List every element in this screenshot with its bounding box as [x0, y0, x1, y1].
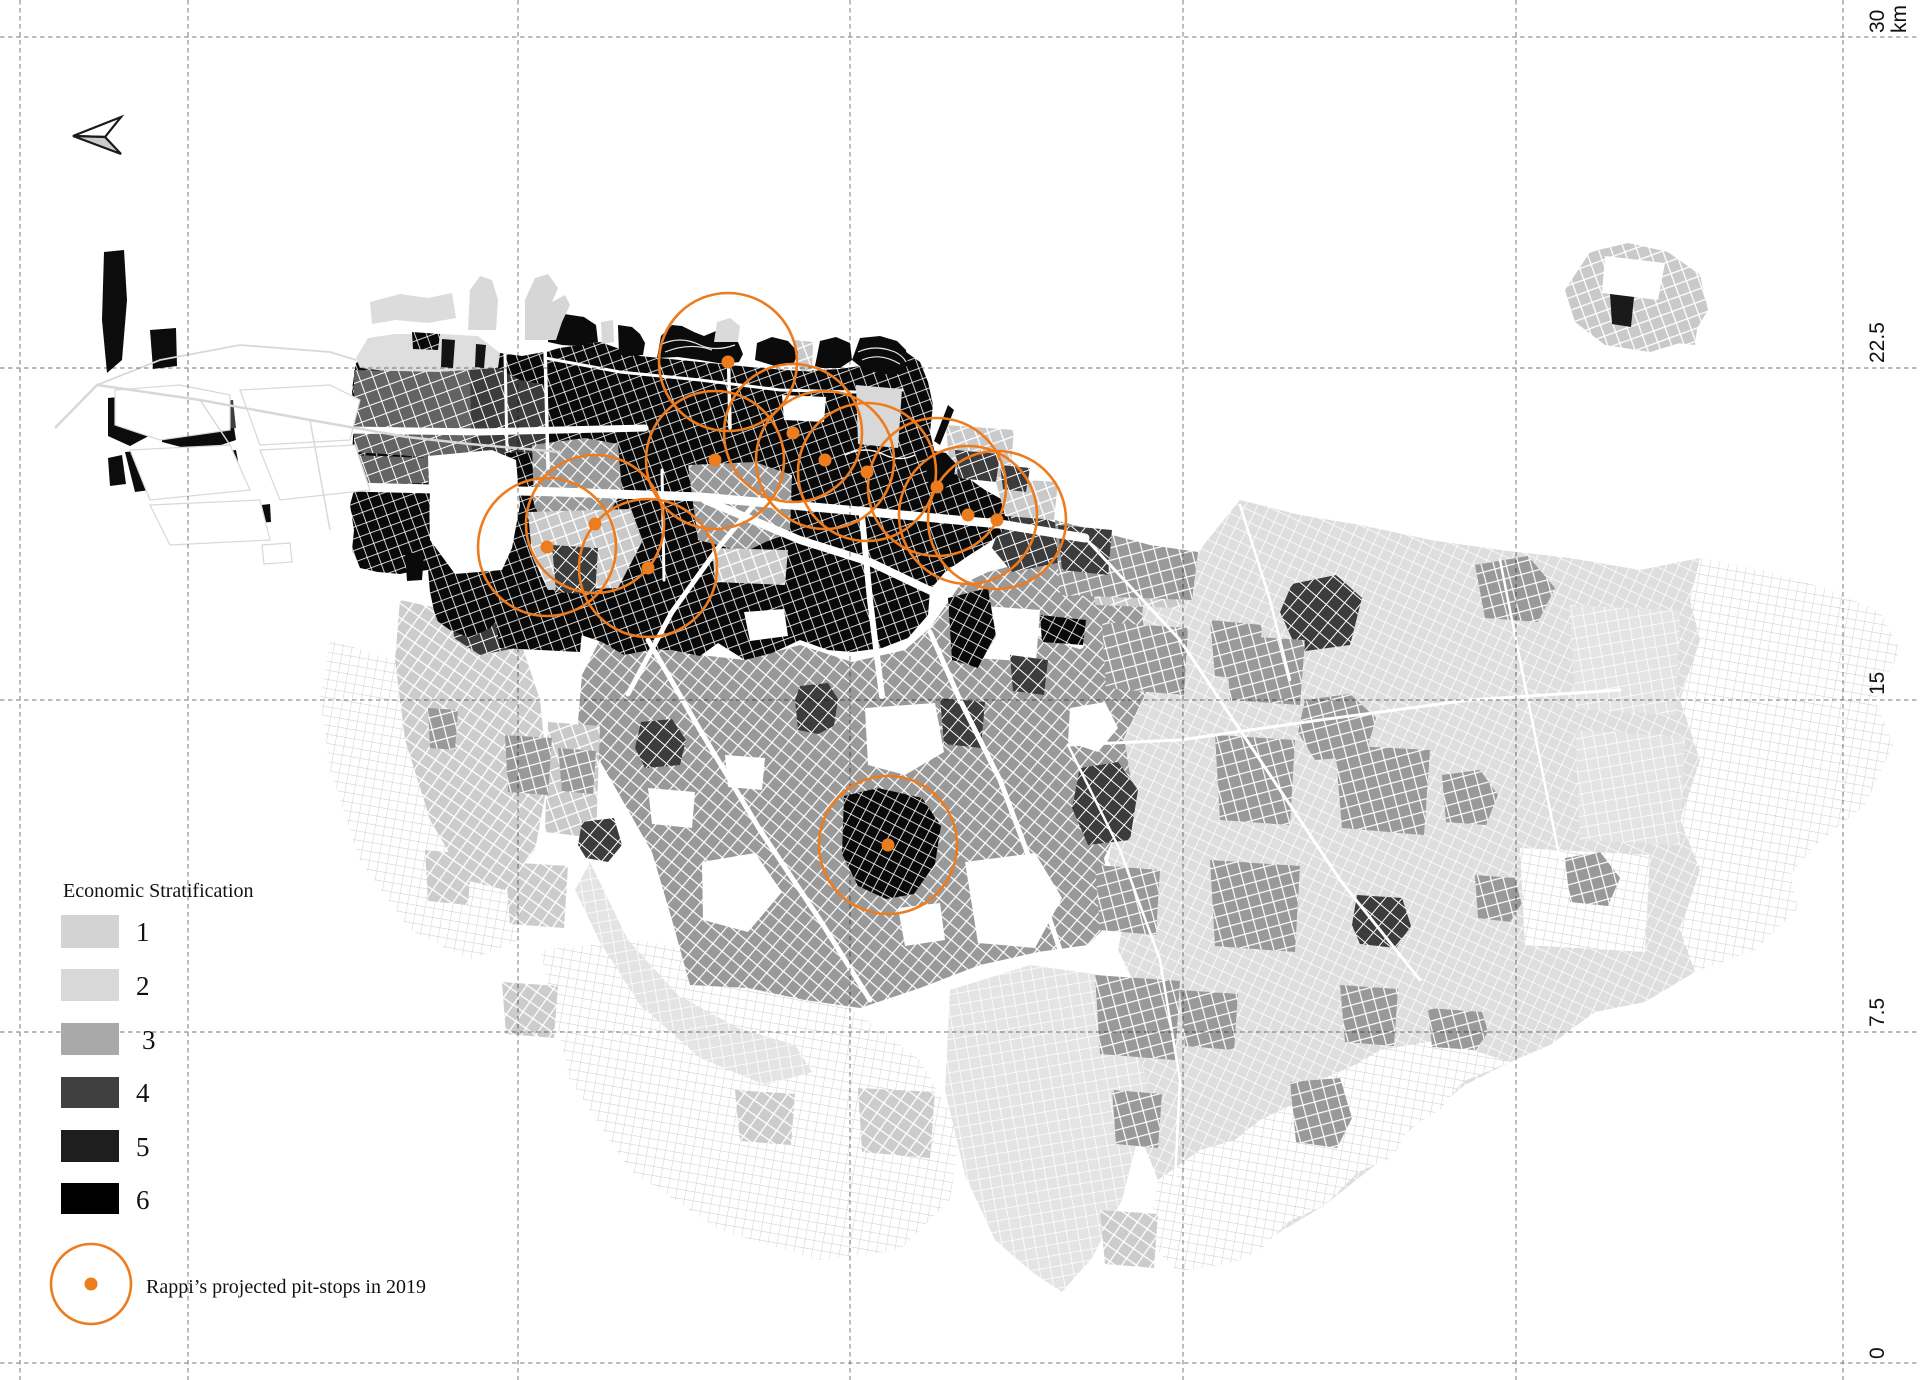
- svg-text:2: 2: [136, 971, 150, 1001]
- svg-text:Rappi’s projected pit-stops in: Rappi’s projected pit-stops in 2019: [146, 1276, 426, 1298]
- svg-text:30: 30: [1866, 10, 1889, 33]
- svg-text:1: 1: [136, 917, 150, 947]
- svg-text:km: km: [1888, 5, 1911, 33]
- svg-text:22.5: 22.5: [1866, 322, 1889, 363]
- svg-text:15: 15: [1866, 672, 1889, 695]
- svg-text:5: 5: [136, 1132, 150, 1162]
- svg-text:3: 3: [142, 1025, 156, 1055]
- svg-text:Economic Stratification: Economic Stratification: [63, 880, 254, 902]
- svg-text:7.5: 7.5: [1866, 998, 1889, 1027]
- svg-text:0: 0: [1866, 1347, 1889, 1359]
- svg-text:4: 4: [136, 1078, 150, 1108]
- svg-text:6: 6: [136, 1185, 150, 1215]
